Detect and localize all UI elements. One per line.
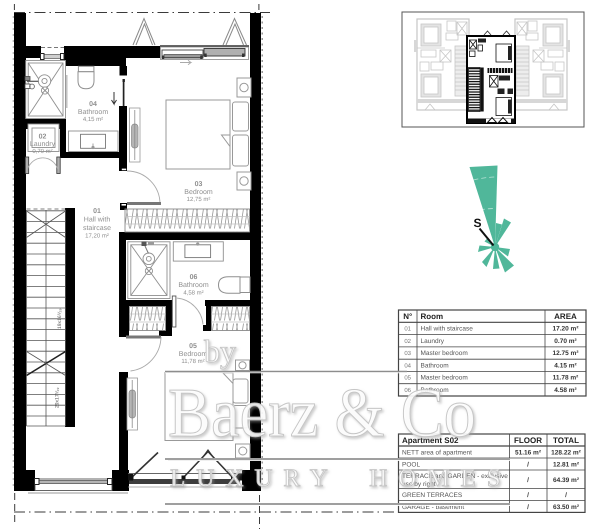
svg-text:Laundry: Laundry (421, 338, 445, 345)
svg-text:11.78 m²: 11.78 m² (553, 375, 579, 382)
svg-text:/: / (565, 492, 567, 499)
svg-text:01: 01 (404, 326, 411, 333)
svg-text:FLOOR: FLOOR (514, 436, 542, 445)
svg-text:Hall with: Hall with (84, 216, 111, 224)
svg-text:Laundry: Laundry (30, 140, 56, 148)
svg-text:GREEN TERRACES: GREEN TERRACES (402, 492, 463, 499)
svg-text:02: 02 (39, 134, 47, 141)
svg-text:Baerz & Co: Baerz & Co (168, 375, 476, 452)
svg-text:0.70 m²: 0.70 m² (554, 338, 577, 345)
svg-text:05: 05 (189, 343, 197, 350)
svg-text:17.20 m²: 17.20 m² (552, 326, 579, 333)
svg-text:/: / (527, 477, 529, 484)
svg-text:63.50 m²: 63.50 m² (553, 504, 580, 511)
svg-text:4.58 m²: 4.58 m² (554, 387, 577, 394)
svg-text:03: 03 (404, 350, 411, 357)
svg-text:Bathroom: Bathroom (78, 108, 109, 116)
svg-text:11,78 m²: 11,78 m² (181, 358, 204, 365)
svg-text:S: S (473, 216, 481, 230)
svg-text:Bedroom: Bedroom (184, 188, 213, 196)
svg-text:51.16 m²: 51.16 m² (515, 450, 542, 457)
svg-text:04: 04 (404, 362, 411, 369)
svg-text:01: 01 (93, 208, 101, 215)
svg-text:03: 03 (195, 181, 203, 188)
svg-text:19x16⁵⁄₂₉: 19x16⁵⁄₂₉ (57, 309, 63, 329)
svg-text:Master bedroom: Master bedroom (421, 350, 468, 357)
svg-text:/: / (527, 462, 529, 469)
svg-text:staircase: staircase (83, 224, 111, 232)
svg-text:4.15 m²: 4.15 m² (554, 362, 577, 369)
svg-text:LUXURY HOMES: LUXURY HOMES (170, 465, 512, 492)
svg-text:Hall with staircase: Hall with staircase (421, 326, 474, 333)
svg-text:64.39 m²: 64.39 m² (553, 477, 580, 484)
svg-text:AREA: AREA (554, 312, 577, 321)
svg-text:Room: Room (421, 312, 444, 321)
svg-text:/: / (527, 504, 529, 511)
svg-text:by: by (204, 333, 236, 369)
svg-text:128.22 m²: 128.22 m² (551, 450, 581, 457)
svg-text:0,70 m²: 0,70 m² (32, 148, 52, 155)
svg-text:Bathroom: Bathroom (421, 362, 449, 369)
svg-text:4,58 m²: 4,58 m² (183, 290, 203, 297)
svg-text:Bathroom: Bathroom (178, 281, 209, 289)
svg-text:04: 04 (89, 101, 97, 108)
svg-text:06: 06 (190, 274, 198, 281)
svg-text:12.81 m²: 12.81 m² (553, 462, 580, 469)
svg-text:4,15 m²: 4,15 m² (83, 116, 103, 123)
svg-text:02: 02 (404, 338, 411, 345)
svg-text:12.75 m²: 12.75 m² (552, 350, 579, 357)
svg-text:TOTAL: TOTAL (553, 436, 579, 445)
svg-text:N°: N° (403, 312, 412, 321)
svg-text:17,20 m²: 17,20 m² (85, 233, 109, 240)
svg-text:29x17⁵⁄₂₉: 29x17⁵⁄₂₉ (55, 388, 61, 408)
svg-text:12,75 m²: 12,75 m² (187, 196, 211, 203)
svg-text:/: / (527, 492, 529, 499)
